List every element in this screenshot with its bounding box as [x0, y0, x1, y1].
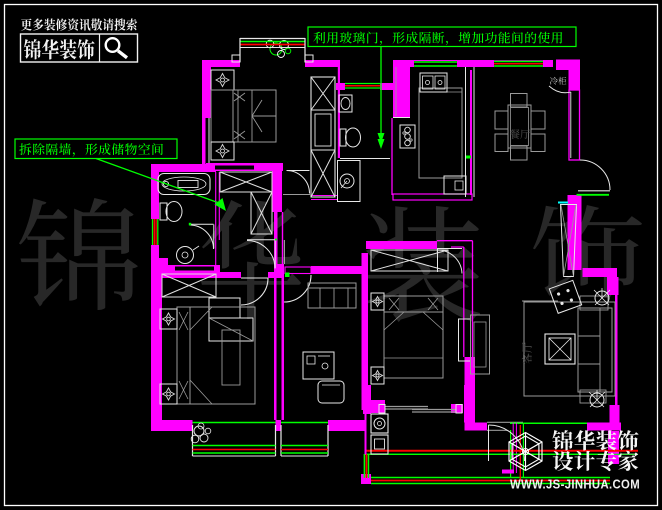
svg-text:WWW.JS-JINHUA.COM: WWW.JS-JINHUA.COM: [510, 478, 640, 492]
